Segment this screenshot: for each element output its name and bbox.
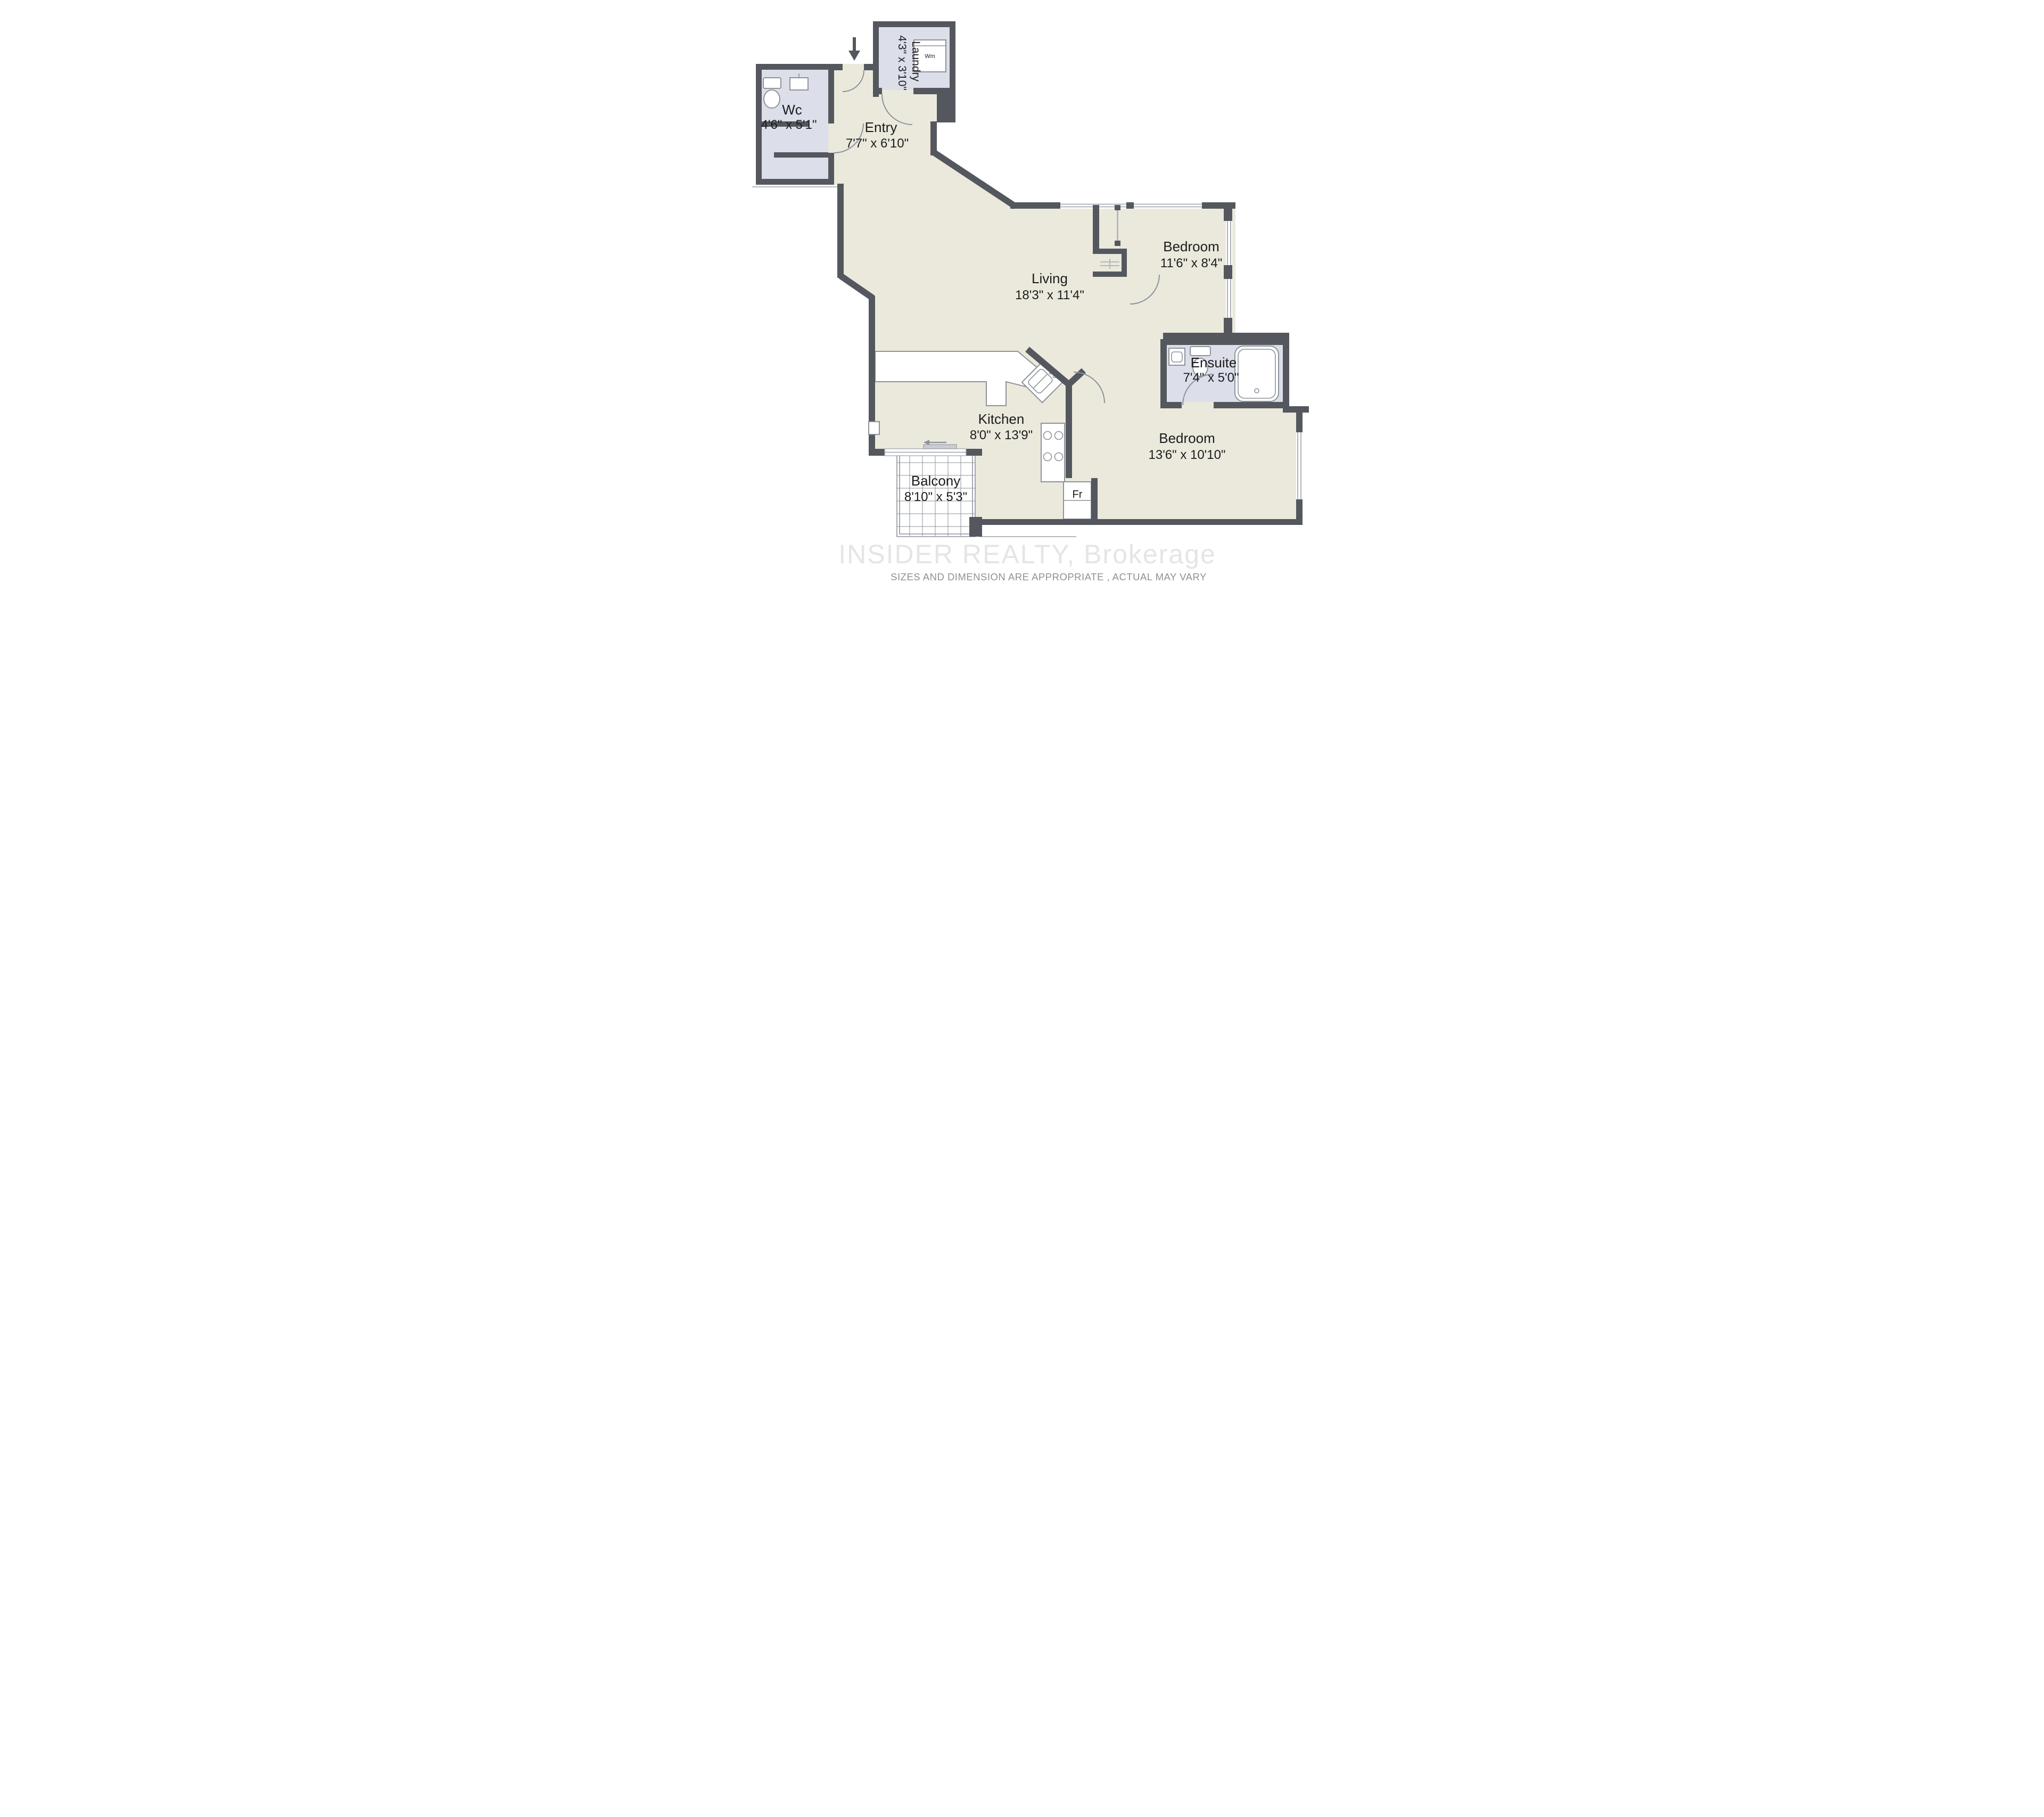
wall [828,64,834,124]
disclaimer: SIZES AND DIMENSION ARE APPROPRIATE , AC… [891,571,1207,582]
balcony-dims: 8'10" x 5'3" [904,490,967,504]
wall [1224,205,1232,221]
wall [834,64,843,70]
sink-icon [1169,348,1185,365]
bedroom1-dims: 11'6" x 8'4" [1160,256,1223,270]
bedroom1-name: Bedroom [1163,239,1219,254]
window-bedroom2 [1296,432,1303,499]
living-name: Living [1032,270,1068,286]
wall [864,64,873,70]
wall [1160,339,1167,408]
fridge-icon [1064,482,1091,519]
wall [1214,402,1289,408]
wall [1091,478,1098,519]
wall [873,88,882,94]
wall [756,179,834,185]
wall [756,64,834,70]
wall [873,21,955,27]
wall [966,449,982,456]
wall [1093,205,1099,252]
wall [1163,333,1289,345]
wall [873,21,879,97]
kitchen-name: Kitchen [978,411,1025,427]
wall [837,184,844,278]
entry-dims: 7'7" x 6'10" [846,136,909,151]
wall [828,153,834,185]
floor-plan-page: Laundry 4'3" x 3'10" Wm Wc 4'6" x 5'1" E… [681,0,1363,606]
wall [774,152,828,158]
toilet-icon [763,78,781,108]
duct [869,422,879,434]
ensuite-name: Ensuite [1191,355,1237,371]
bedroom2-name: Bedroom [1159,430,1215,446]
wall [1160,402,1182,408]
watermark: INSIDER REALTY, Brokerage [838,539,1216,569]
washer-label: Wm [925,53,935,60]
bathtub-icon [1235,346,1279,401]
wall [1283,406,1309,413]
wall [1126,202,1134,209]
entry-arrow-icon [848,37,860,61]
wall [1093,272,1127,277]
fridge-label: Fr [1073,489,1083,500]
wall [1066,381,1072,478]
wall [1224,265,1232,279]
wc-dims: 4'6" x 5'1" [761,118,817,132]
wall [971,519,1303,525]
ensuite-dims: 7'4" x 5'0" [1183,371,1239,385]
living-dims: 18'3" x 11'4" [1015,288,1084,302]
kitchen-dims: 8'0" x 13'9" [970,428,1033,442]
wall [1296,406,1303,432]
wc-name: Wc [782,102,802,118]
bedroom2-dims: 13'6" x 10'10" [1149,448,1226,462]
balcony-name: Balcony [911,473,961,489]
wall [1224,318,1232,333]
entry-name: Entry [865,119,897,135]
wall [869,449,885,456]
wall [1283,333,1289,413]
floor-plan: Laundry 4'3" x 3'10" Wm Wc 4'6" x 5'1" E… [681,0,1363,606]
wall [1010,202,1060,209]
wall [937,88,955,122]
